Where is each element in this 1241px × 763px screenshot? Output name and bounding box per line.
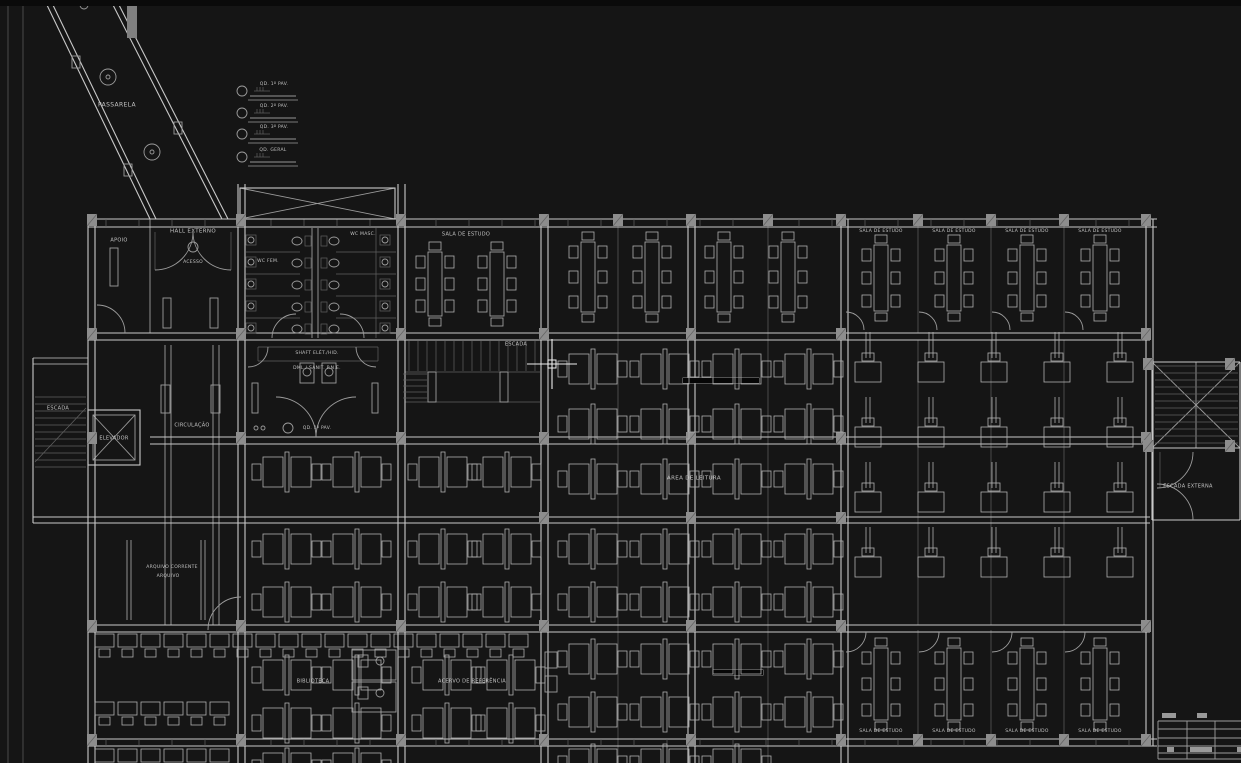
cad-viewport[interactable]: PASSARELAQD. 1º PAV.QD. 2º PAV.QD. 3º PA… [0, 0, 1241, 763]
floor-plan-linework [0, 0, 1241, 763]
window-top-edge [0, 0, 1241, 6]
